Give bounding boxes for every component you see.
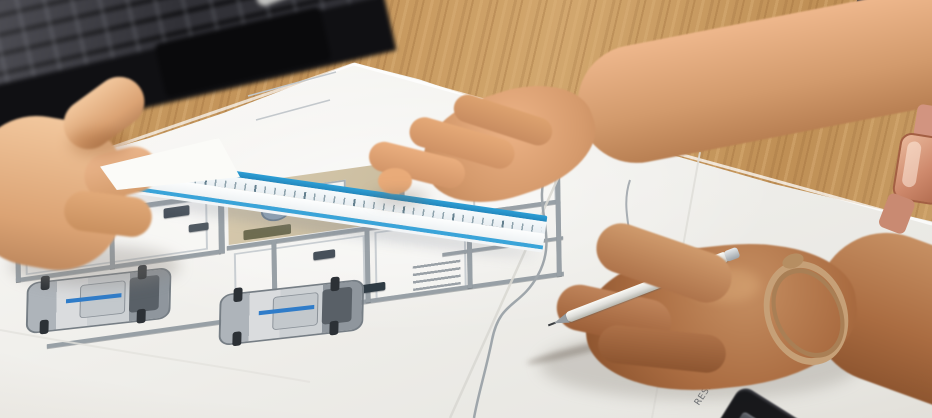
rope-bracelet (748, 256, 858, 360)
photo-architects-desk: RESIDENCIAL (0, 0, 932, 418)
